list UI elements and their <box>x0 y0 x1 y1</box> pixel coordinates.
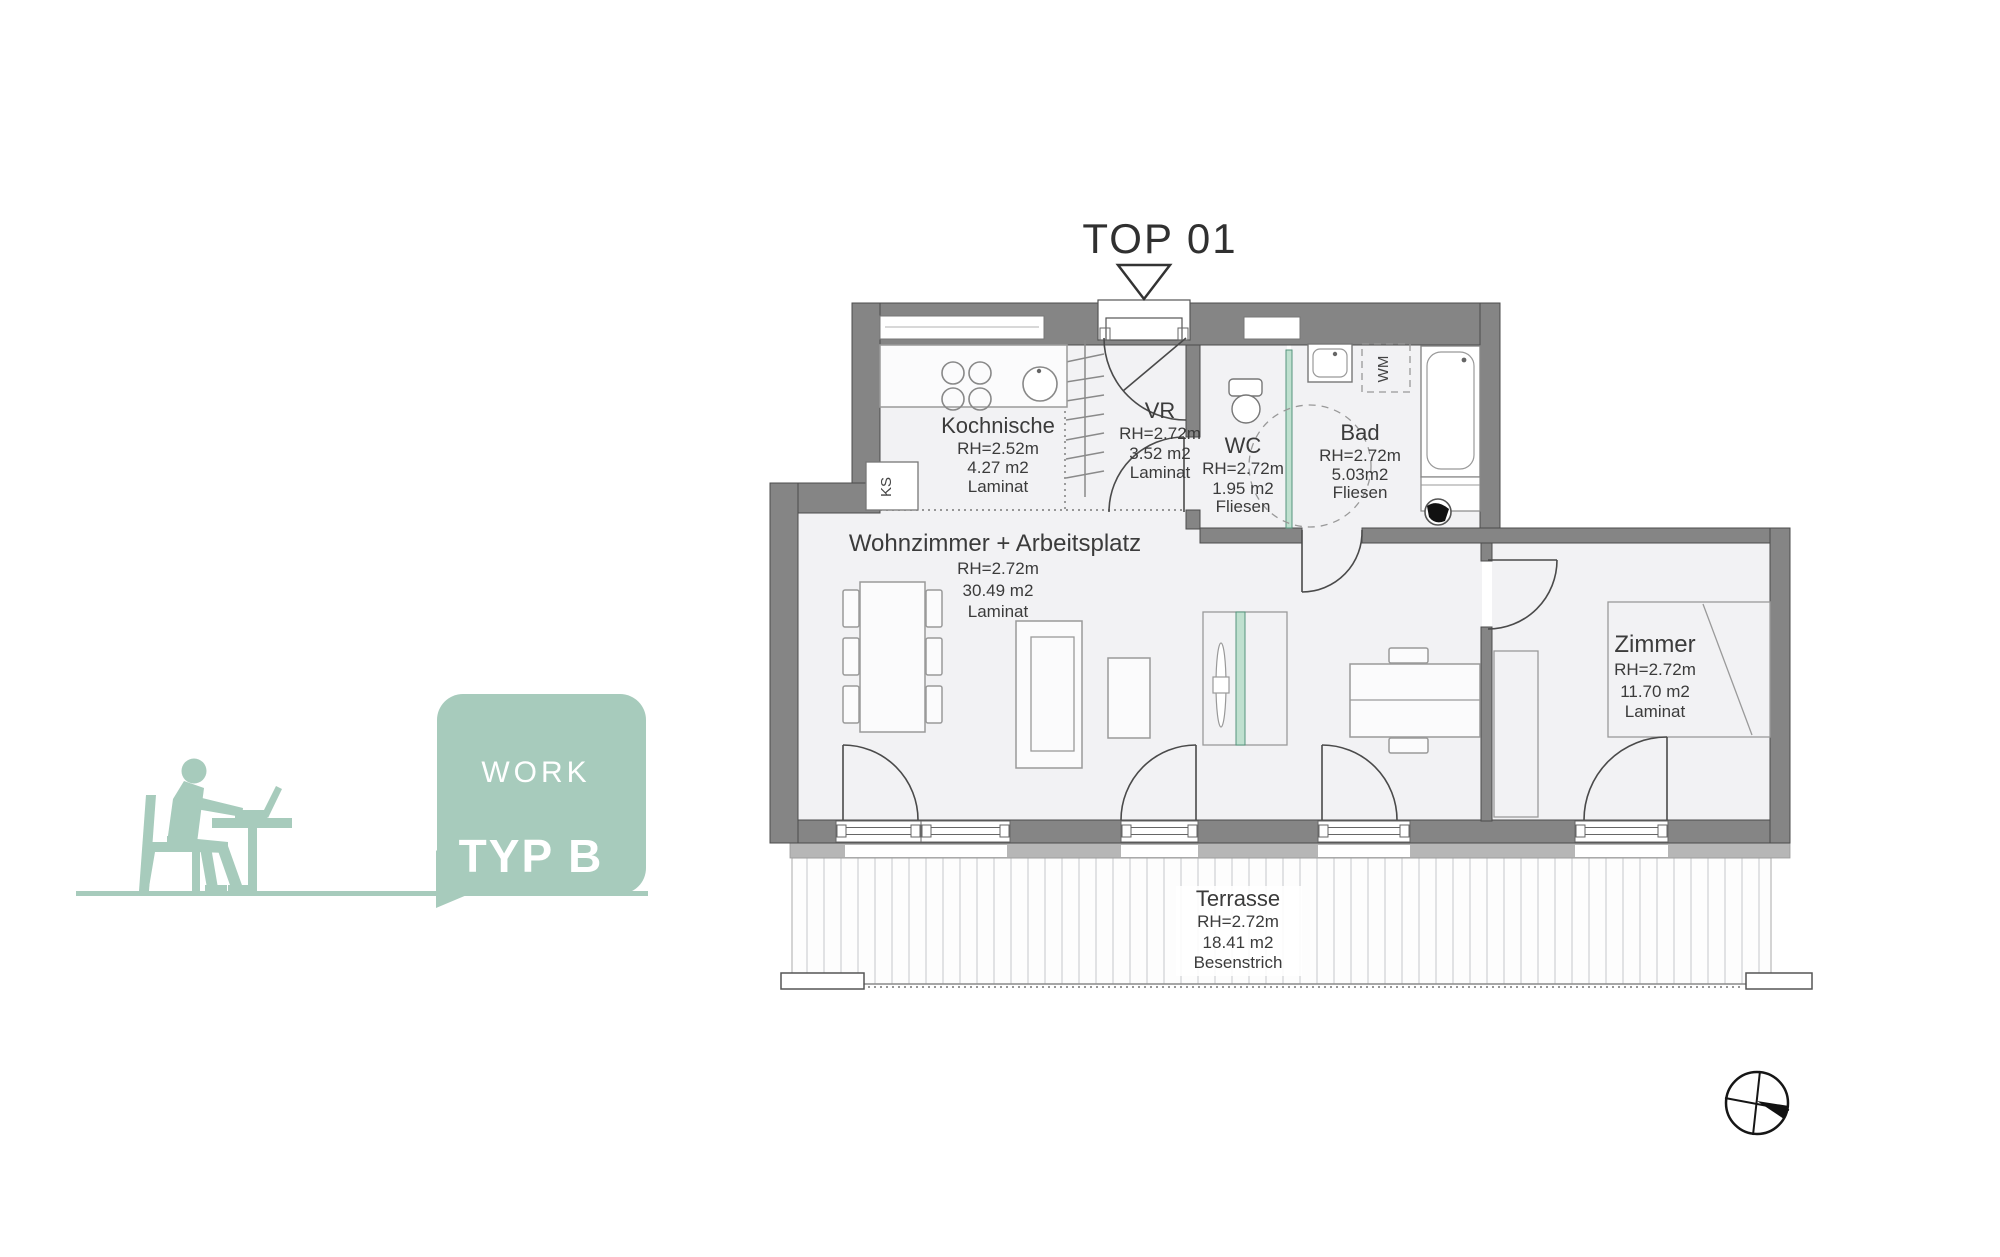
floor-drain <box>1425 499 1451 525</box>
room-floor-finish: Laminat <box>1625 702 1686 721</box>
room-floor-finish: Fliesen <box>1216 497 1271 516</box>
room-name: WC <box>1225 433 1262 458</box>
page-title: TOP 01 <box>1082 215 1237 262</box>
room-area: 1.95 m2 <box>1212 479 1273 498</box>
room-area: 18.41 m2 <box>1203 933 1274 952</box>
room-area: 11.70 m2 <box>1620 682 1690 701</box>
partition-living-zimmer <box>1481 543 1492 561</box>
fridge-niche: KS <box>866 462 918 510</box>
room-floor-finish: Besenstrich <box>1194 953 1283 972</box>
room-floor-finish: Laminat <box>1130 463 1191 482</box>
west-wall <box>770 483 798 843</box>
terrace-door-unit <box>1121 821 1198 842</box>
room-height: RH=2.72m <box>1197 912 1279 931</box>
room-floor-finish: Laminat <box>968 477 1029 496</box>
room-name: Bad <box>1340 420 1379 445</box>
terrace-step <box>781 973 864 989</box>
room-height: RH=2.72m <box>1119 424 1201 443</box>
room-area: 30.49 m2 <box>963 581 1034 600</box>
room-name: VR <box>1145 398 1176 423</box>
washbasin <box>1308 344 1352 382</box>
work-table <box>1350 648 1480 753</box>
fridge-label: KS <box>878 477 895 497</box>
terrace-door-unit <box>1318 821 1410 842</box>
room-name: Kochnische <box>941 413 1055 438</box>
wc-window <box>1244 317 1300 339</box>
room-area: 4.27 m2 <box>967 458 1028 477</box>
room-height: RH=2.52m <box>957 439 1039 458</box>
kitchen-sink <box>1023 367 1057 401</box>
room-floor-finish: Fliesen <box>1333 483 1388 502</box>
terrace-door-unit <box>836 821 921 842</box>
room-name: Wohnzimmer + Arbeitsplatz <box>849 530 1141 557</box>
glass-partition <box>1286 350 1292 528</box>
dining-table <box>843 582 942 732</box>
room-label-zimmer: Zimmer RH=2.72m 11.70 m2 Laminat <box>1614 631 1696 721</box>
bathtub <box>1421 346 1480 511</box>
room-name: Terrasse <box>1196 886 1280 911</box>
washing-machine-label: WM <box>1375 356 1392 383</box>
floorplan-canvas: KS WM <box>0 0 2000 1257</box>
exterior-band <box>790 843 1790 858</box>
badge-category: WORK <box>481 756 590 789</box>
room-height: RH=2.72m <box>1319 446 1401 465</box>
sofa <box>1016 621 1082 768</box>
terrace-door-unit <box>1575 821 1668 842</box>
person-at-desk-silhouette <box>139 759 292 895</box>
room-floor-finish: Laminat <box>968 602 1029 621</box>
corridor-south-wall <box>1200 528 1302 543</box>
plan-title: TOP 01 <box>1082 215 1237 299</box>
room-height: RH=2.72m <box>1614 660 1696 679</box>
badge-type: TYP B <box>459 830 604 882</box>
coffee-table <box>1108 658 1150 738</box>
room-height: RH=2.72m <box>1202 459 1284 478</box>
kitchen-counter <box>880 345 1067 410</box>
entrance-door-panel <box>1098 300 1190 340</box>
room-area: 3.52 m2 <box>1129 444 1190 463</box>
east-wall <box>1770 528 1790 843</box>
room-area: 5.03m2 <box>1332 465 1389 484</box>
window-unit <box>921 821 1010 842</box>
entrance-marker-icon <box>1118 265 1170 299</box>
north-arrow-icon <box>1725 1071 1789 1135</box>
room-name: Zimmer <box>1614 631 1695 658</box>
terrace-step <box>1746 973 1812 989</box>
type-badge: WORK TYP B <box>436 694 646 908</box>
room-height: RH=2.72m <box>957 559 1039 578</box>
zimmer-north-wall <box>1362 528 1790 543</box>
toilet <box>1229 379 1262 423</box>
work-vignette: WORK TYP B <box>76 694 648 908</box>
partition-living-zimmer <box>1481 627 1492 821</box>
bath-east-wall <box>1480 303 1500 543</box>
desk-silhouette <box>212 818 292 828</box>
south-wall <box>798 820 1790 843</box>
wc-west-wall <box>1186 510 1200 529</box>
room-label-terrasse: Terrasse RH=2.72m 18.41 m2 Besenstrich <box>1176 886 1302 976</box>
